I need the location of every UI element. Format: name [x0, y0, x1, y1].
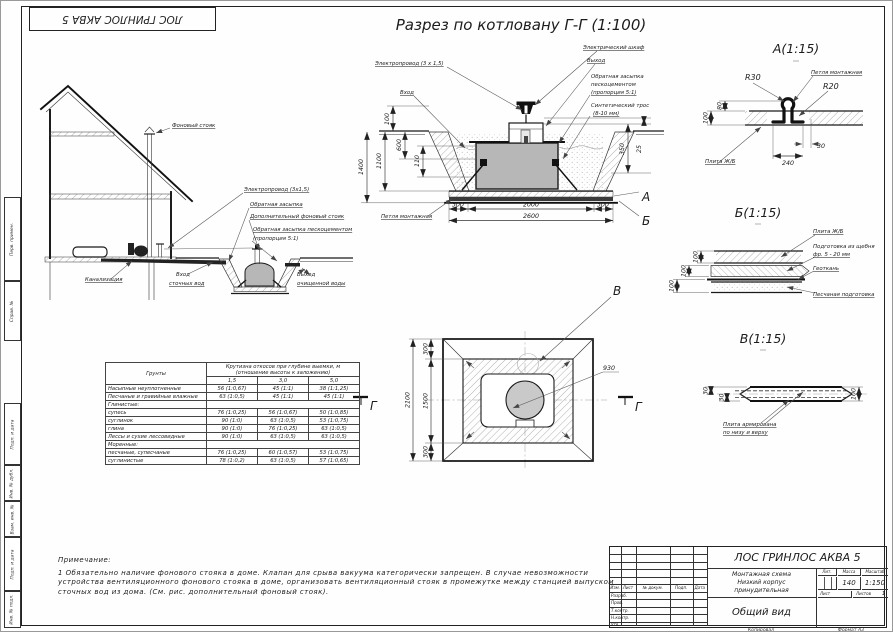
tb-lit-label: Лит. — [818, 569, 837, 576]
table-span-header: Крутизна откосов при глубине выемки, м (… — [207, 363, 360, 377]
label-slab-a: Плита Ж/Б — [705, 159, 736, 165]
drawing-sheet: Разрез по котловану Г-Г (1:100) — [0, 0, 893, 632]
label-rope-1: Синтетический трос — [591, 103, 649, 109]
tb-row-utv: Утв. — [610, 622, 636, 627]
label-geotextile: Геоткань — [813, 266, 839, 272]
side-cell-inv-podl: Инв. № подл. — [4, 591, 21, 628]
label-pit-backfill-2: пескоцементом — [591, 82, 636, 88]
drawing-canvas: Разрез по котловану Г-Г (1:100) — [1, 1, 893, 632]
table-row: суглинистые78 (1:0,2)63 (1:0,5)57 (1:0,6… — [106, 457, 360, 465]
dim-plan-300b: 300 — [423, 446, 430, 458]
outlet-pipe — [285, 263, 300, 267]
dim-plan-2100: 2100 — [405, 392, 412, 408]
label-pit-wire: Электропровод (3 х 1,5) — [374, 61, 444, 67]
dim-a-30: 30 — [817, 143, 825, 150]
label-cabinet: Электрический шкаф — [582, 45, 645, 51]
dim-25: 25 — [636, 145, 643, 153]
dim-dia-930: 930 — [603, 365, 615, 372]
inverted-designation-text: ЛОС ГРИНЛОС АКВА 5 — [62, 13, 183, 25]
table-row: суглинок90 (1:0)63 (1:0,5)53 (1:0,75) — [106, 417, 360, 425]
label-backfill-prop: (пропорция 5:1) — [253, 236, 299, 242]
tb-product-name: ЛОС ГРИНЛОС АКВА 5 — [707, 547, 888, 569]
dim-100: 100 — [384, 113, 391, 125]
dim-a-100: 100 — [703, 112, 710, 124]
dim-b-100-1: 100 — [693, 251, 700, 263]
dim-2000: 2000 — [523, 202, 539, 209]
plan-view: В 930 300 1500 300 2100 Г Г — [353, 284, 643, 469]
section-letter-left: Г — [370, 399, 378, 413]
table-depth-3: 5,0 — [309, 377, 360, 385]
power-cable-line — [164, 248, 253, 249]
label-inlet-2: сточных вод — [169, 281, 205, 287]
tb-row-prov: Пров. — [610, 599, 636, 607]
callout-a: А — [641, 190, 650, 204]
label-backfill: Обратная засыпка — [250, 202, 303, 208]
dim-v-30-1: 30 — [703, 387, 710, 395]
base-slab-gravel — [449, 192, 613, 198]
notes-block: Примечание: 1 Обязательно наличие фоново… — [58, 556, 633, 597]
tank-lid-plan — [506, 381, 544, 419]
label-r20: R20 — [823, 82, 839, 91]
dim-1100: 1100 — [376, 153, 383, 169]
notes-title: Примечание: — [58, 556, 633, 566]
callout-v: В — [613, 284, 621, 298]
detail-v-title: В(1:15) — [740, 331, 786, 346]
table-row: песчаные, супесчаные76 (1:0,25)60 (1:0,5… — [106, 449, 360, 457]
main-title: Разрез по котловану Г-Г (1:100) — [396, 16, 647, 34]
dim-a-80: 80 — [717, 102, 724, 110]
side-cell-sprav-no: Справ. № — [4, 281, 21, 341]
vent-cap — [145, 127, 154, 132]
tb-doc-name: Монтажная схема Низкий корпус принудител… — [707, 569, 817, 598]
tb-hdr-data: Дата — [693, 584, 708, 592]
notes-line: 1 Обязательно наличие фонового стояка в … — [58, 569, 633, 579]
pit-section-view: 100 1400 1100 600 110 350 25 300 2000 30… — [358, 45, 664, 228]
label-reinf-2: по низу и верху — [723, 430, 769, 436]
detail-v-view: В(1:15) 30 30 100 Плита армирована по ни… — [703, 331, 868, 436]
mid-floor — [50, 194, 171, 199]
label-pit-inlet: Вход — [400, 90, 414, 96]
attic-floor — [50, 132, 114, 136]
toilet-tank — [128, 243, 134, 255]
tb-masshtab-label: Масштаб — [862, 569, 888, 576]
tb-listov: Листов 1 — [853, 591, 888, 599]
tb-hdr-ndoc: № докум. — [636, 584, 671, 592]
dim-a-240: 240 — [782, 160, 794, 167]
tb-masshtab-value: 1:150 — [862, 577, 888, 591]
tb-massa-label: Масса — [838, 569, 861, 576]
dim-600: 600 — [396, 139, 403, 151]
label-extra-riser: Дополнительный фоновый стояк — [249, 214, 345, 220]
dim-b-100-3: 100 — [669, 280, 676, 292]
buried-tank — [245, 263, 274, 286]
roof-outline — [41, 86, 192, 201]
table-depth-1: 1,5 — [207, 377, 258, 385]
label-pit-backfill-3: (пропорция 5:1) — [591, 90, 637, 96]
tb-row-tkontr: Т.контр. — [610, 607, 636, 614]
tb-hdr-izm: Изм. — [610, 584, 621, 592]
label-rope-2: (8-10 мм) — [593, 111, 619, 117]
house-section-view: Фоновый стояк Электропровод (3х1,5) Обра… — [41, 86, 353, 300]
tb-view-name: Общий вид — [707, 598, 817, 627]
detail-b-view: Б(1:15) Плита Ж/Б Подготовка из щебня фр… — [669, 205, 876, 298]
table-depth-2: 3,0 — [258, 377, 309, 385]
label-sand: Песчаная подготовка — [813, 292, 874, 298]
label-pit-outlet: Выход — [587, 58, 605, 64]
dim-2600: 2600 — [523, 213, 539, 220]
dim-350: 350 — [619, 143, 626, 155]
label-pit-backfill-1: Обратная засыпка — [591, 74, 644, 80]
dim-300r: 300 — [597, 202, 609, 209]
table-group-row: Глинистые: — [106, 401, 360, 409]
table-group-row: Моренные: — [106, 441, 360, 449]
callout-b: Б — [642, 214, 650, 228]
side-cell-podp-data-2: Подп. и дата — [4, 537, 21, 591]
label-inlet-1: Вход — [176, 272, 190, 278]
bathtub — [73, 247, 107, 257]
tb-hdr-podp: Подп. — [670, 584, 693, 592]
tb-lit-value — [818, 577, 837, 591]
dim-300l: 300 — [452, 202, 464, 209]
side-cell-perv-primen: Перв. примен. — [4, 197, 21, 281]
table-row: Песчаные и гравийные влажные63 (1:0,5)45… — [106, 393, 360, 401]
detail-a-view: А(1:15) R30 Петля монтажная R20 80 100 3… — [703, 41, 864, 167]
table-col-soils: Грунты — [106, 363, 207, 385]
side-cell-vzam-inv: Взам. инв. № — [4, 501, 21, 537]
label-r30: R30 — [745, 73, 761, 82]
label-backfill-cement: Обратная засыпка пескоцементом — [253, 227, 352, 233]
table-row: глина90 (1:0)76 (1:0,25)63 (1:0,5) — [106, 425, 360, 433]
tb-company-cell — [818, 598, 888, 627]
format-label: Формат А3 — [821, 628, 881, 632]
label-sewer: Канализация — [85, 277, 123, 283]
detail-b-title: Б(1:15) — [735, 205, 781, 220]
dim-v-30-2: 30 — [719, 393, 726, 401]
label-gravel-2: фр. 5 - 20 мм — [813, 252, 850, 258]
label-loop: Петля монтажная — [381, 214, 433, 220]
tb-row-nkontr: Н.контр. — [610, 614, 636, 622]
label-outlet-1: Выход — [297, 272, 315, 278]
dim-110: 110 — [414, 155, 421, 167]
slope-table: Грунты Крутизна откосов при глубине выем… — [105, 362, 360, 465]
tb-list-label: Лист — [818, 591, 852, 599]
label-riser: Фоновый стояк — [172, 123, 216, 129]
kopiroval-label: Копировал — [701, 628, 821, 632]
dim-plan-1500: 1500 — [423, 393, 430, 409]
dim-1400: 1400 — [358, 159, 365, 175]
label-wire: Электропровод (3х1,5) — [243, 187, 309, 193]
label-outlet-2: очищенной воды — [297, 281, 346, 287]
dim-v-100: 100 — [851, 388, 858, 400]
label-slab-b: Плита Ж/Б — [813, 229, 844, 235]
tb-row-razrab: Разраб. — [610, 592, 636, 599]
tank-body — [476, 143, 558, 189]
label-loop-a: Петля монтажная — [811, 70, 863, 76]
side-cell-inv-dubl: Инв. № дубл. — [4, 465, 21, 501]
toilet-bowl — [134, 246, 148, 257]
dim-plan-300t: 300 — [423, 343, 430, 355]
label-gravel-1: Подготовка из щебня — [813, 244, 875, 250]
label-reinf-1: Плита армирована — [723, 422, 776, 428]
inverted-designation-stamp: ЛОС ГРИНЛОС АКВА 5 — [29, 7, 216, 31]
base-slab — [449, 197, 613, 201]
detail-a-title: А(1:15) — [772, 41, 819, 56]
notes-line: сточных вод из дома. (См. рис. дополните… — [58, 588, 633, 598]
dim-b-100-2: 100 — [681, 265, 688, 277]
side-cell-podp-data-1: Подп. и дата — [4, 403, 21, 465]
tb-massa-value: 140 — [838, 577, 861, 591]
table-row: Лессы и сухие лессовидные90 (1:0)63 (1:0… — [106, 433, 360, 441]
tb-hdr-list: Лист — [621, 584, 636, 592]
title-block: Изм. Лист № докум. Подп. Дата Разраб. Пр… — [609, 546, 887, 628]
section-letter-right: Г — [635, 400, 643, 414]
table-row: супесь76 (1:0,25)56 (1:0,67)50 (1:0,85) — [106, 409, 360, 417]
table-row: Насыпные неуплотненные56 (1:0,67)45 (1:1… — [106, 385, 360, 393]
notes-line: устройства вентиляционного фонового стоя… — [58, 578, 633, 588]
